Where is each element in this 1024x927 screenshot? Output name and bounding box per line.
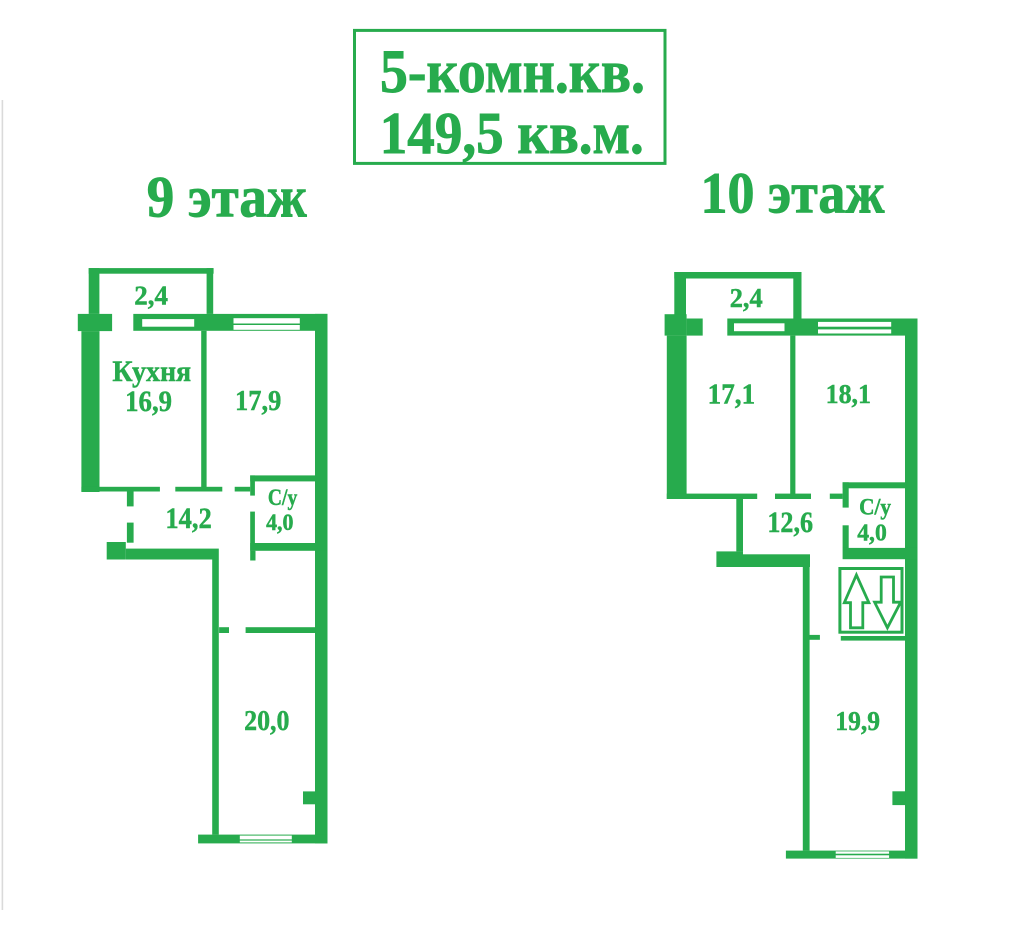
svg-text:18,1: 18,1	[826, 378, 871, 409]
svg-text:С/у: С/у	[859, 494, 891, 519]
svg-text:20,0: 20,0	[244, 705, 289, 737]
svg-text:9 этаж: 9 этаж	[147, 165, 307, 230]
svg-text:14,2: 14,2	[165, 503, 211, 535]
svg-text:17,1: 17,1	[708, 380, 756, 411]
svg-text:4,0: 4,0	[857, 520, 887, 546]
svg-text:5-комн.кв.: 5-комн.кв.	[380, 39, 645, 106]
svg-text:4,0: 4,0	[266, 510, 293, 536]
svg-text:149,5 кв.м.: 149,5 кв.м.	[380, 100, 644, 166]
svg-text:17,9: 17,9	[235, 385, 281, 417]
svg-text:12,6: 12,6	[767, 506, 813, 539]
svg-text:2,4: 2,4	[730, 282, 763, 313]
svg-text:16,9: 16,9	[125, 385, 172, 418]
svg-text:2,4: 2,4	[134, 279, 168, 310]
svg-text:10 этаж: 10 этаж	[701, 160, 885, 225]
svg-text:19,9: 19,9	[835, 705, 880, 736]
svg-text:С/у: С/у	[268, 485, 298, 511]
svg-text:Кухня: Кухня	[112, 355, 191, 388]
